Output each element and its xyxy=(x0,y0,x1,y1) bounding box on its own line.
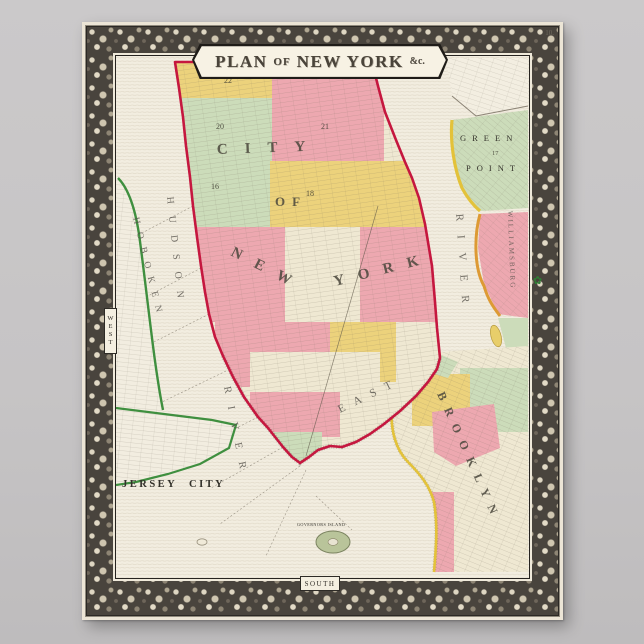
green-flower-icon: ✿ xyxy=(533,274,542,287)
compass-south-label: SOUTH xyxy=(300,576,340,591)
label-green: GREEN xyxy=(460,133,518,143)
map-area: CITY OF NEW YORK HUDSON RIVER HOBOKEN JE… xyxy=(115,55,530,579)
ward-20: 20 xyxy=(216,122,224,131)
title-plan: PLAN xyxy=(215,52,267,72)
ward-16: 16 xyxy=(211,182,219,191)
ward-21: 21 xyxy=(321,122,329,131)
label-of: OF xyxy=(275,194,307,209)
gray-backdrop: 10. WEST SOUTH ✿ xyxy=(0,0,644,644)
label-governors-island: GOVERNORS ISLAND xyxy=(297,522,345,527)
map-svg: CITY OF NEW YORK HUDSON RIVER HOBOKEN JE… xyxy=(116,56,529,578)
label-jersey-city: JERSEY CITY xyxy=(122,479,225,490)
title-new-york: NEW YORK xyxy=(297,52,404,72)
title-etc: &c. xyxy=(410,56,425,67)
title-cartouche: PLAN OF NEW YORK &c. xyxy=(192,44,448,79)
title-of: OF xyxy=(273,56,290,68)
poster: 10. WEST SOUTH ✿ xyxy=(82,22,563,620)
compass-west-label: WEST xyxy=(104,308,117,354)
page-number: 10. xyxy=(545,29,554,37)
label-point: POINT xyxy=(466,163,521,173)
small-harbor-island xyxy=(197,539,207,545)
ward-17: 17 xyxy=(492,150,499,157)
ward-18: 18 xyxy=(306,189,314,198)
governors-island xyxy=(316,531,350,553)
